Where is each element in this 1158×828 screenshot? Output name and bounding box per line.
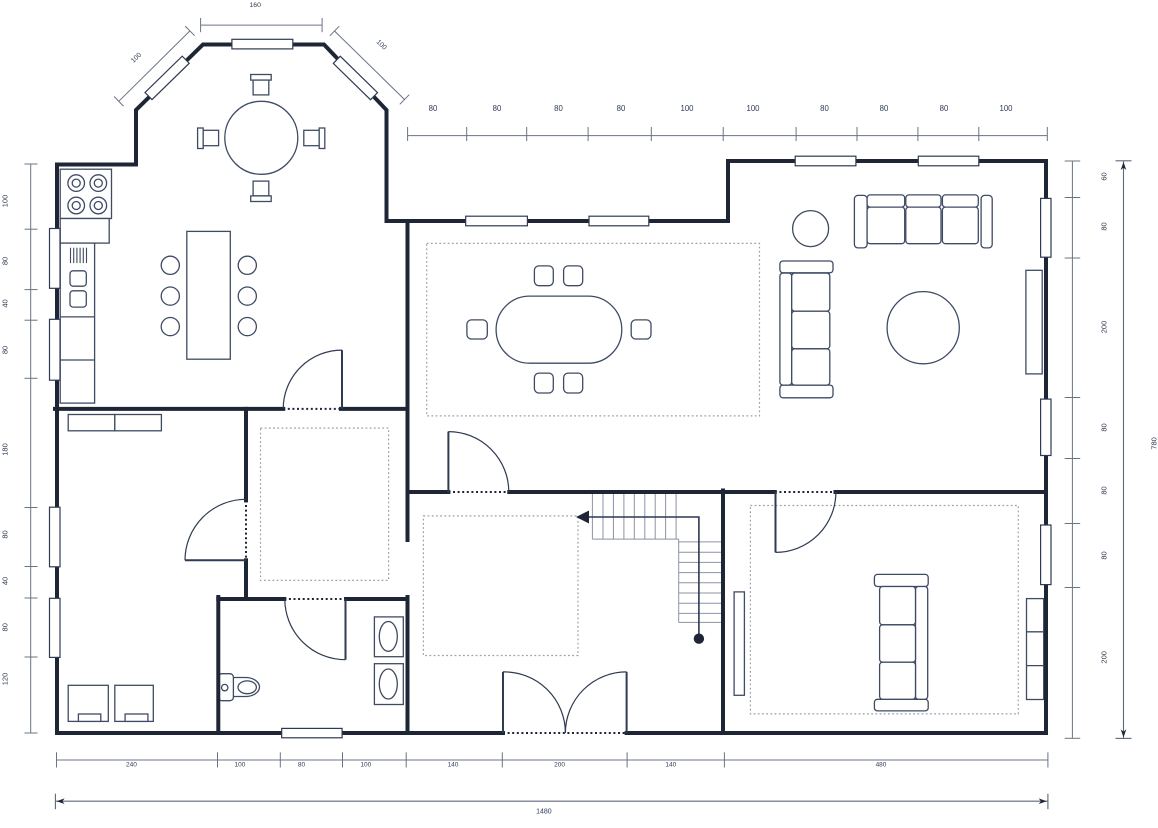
svg-text:100: 100: [680, 104, 694, 113]
svg-text:40: 40: [1, 577, 10, 585]
svg-text:80: 80: [1, 530, 10, 538]
svg-text:160: 160: [250, 2, 262, 9]
svg-text:100: 100: [1, 195, 10, 208]
svg-text:80: 80: [940, 104, 949, 113]
svg-text:100: 100: [234, 762, 245, 769]
svg-text:80: 80: [429, 104, 438, 113]
svg-text:100: 100: [746, 104, 760, 113]
svg-text:80: 80: [1, 257, 10, 265]
svg-text:80: 80: [1, 623, 10, 631]
svg-text:200: 200: [1099, 321, 1108, 334]
svg-text:60: 60: [1099, 172, 1108, 180]
svg-text:80: 80: [617, 104, 626, 113]
svg-text:80: 80: [1099, 486, 1108, 494]
svg-text:140: 140: [448, 762, 459, 769]
svg-text:480: 480: [876, 762, 887, 769]
svg-text:100: 100: [360, 762, 371, 769]
svg-text:80: 80: [493, 104, 502, 113]
svg-text:80: 80: [1099, 222, 1108, 230]
svg-text:80: 80: [554, 104, 563, 113]
svg-text:80: 80: [298, 762, 306, 769]
svg-text:100: 100: [999, 104, 1013, 113]
svg-text:80: 80: [1099, 423, 1108, 431]
svg-text:80: 80: [820, 104, 829, 113]
svg-text:80: 80: [1099, 551, 1108, 559]
svg-text:140: 140: [665, 762, 676, 769]
svg-text:240: 240: [126, 762, 137, 769]
svg-text:200: 200: [554, 762, 565, 769]
svg-text:1480: 1480: [536, 809, 552, 816]
svg-text:80: 80: [880, 104, 889, 113]
svg-text:40: 40: [1, 299, 10, 307]
svg-text:200: 200: [1099, 651, 1108, 664]
svg-text:120: 120: [1, 673, 10, 686]
svg-text:180: 180: [1, 443, 10, 456]
svg-text:80: 80: [1, 346, 10, 354]
svg-text:780: 780: [1149, 437, 1158, 450]
